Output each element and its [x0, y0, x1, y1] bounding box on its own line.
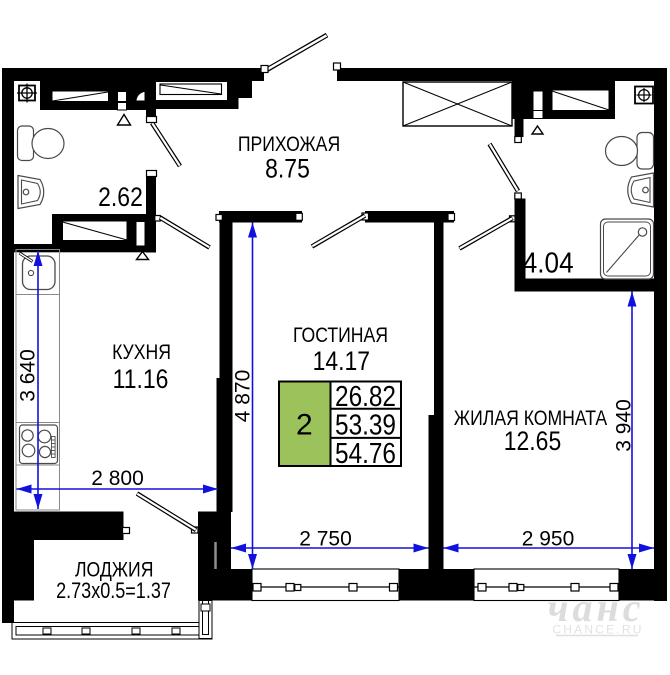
svg-text:54.76: 54.76 [335, 437, 396, 469]
svg-text:12.65: 12.65 [504, 426, 561, 456]
svg-text:2.73х0.5=1.37: 2.73х0.5=1.37 [56, 579, 171, 603]
svg-text:8.75: 8.75 [265, 154, 310, 184]
svg-text:2: 2 [296, 409, 313, 442]
svg-text:CHANCE.RU: CHANCE.RU [552, 623, 643, 637]
svg-text:2.62: 2.62 [98, 182, 143, 212]
svg-text:ГОСТИНАЯ: ГОСТИНАЯ [293, 324, 388, 348]
svg-text:4.04: 4.04 [523, 246, 574, 279]
svg-text:2 800: 2 800 [91, 467, 144, 490]
svg-text:14.17: 14.17 [313, 346, 370, 376]
svg-text:4 870: 4 870 [232, 370, 255, 423]
svg-text:3 640: 3 640 [17, 349, 40, 402]
svg-text:2 750: 2 750 [299, 528, 352, 551]
svg-text:2 950: 2 950 [522, 528, 575, 551]
svg-text:3 940: 3 940 [613, 399, 636, 452]
svg-text:ЛОДЖИЯ: ЛОДЖИЯ [75, 558, 153, 582]
svg-text:КУХНЯ: КУХНЯ [112, 341, 171, 365]
svg-text:11.16: 11.16 [113, 364, 169, 394]
